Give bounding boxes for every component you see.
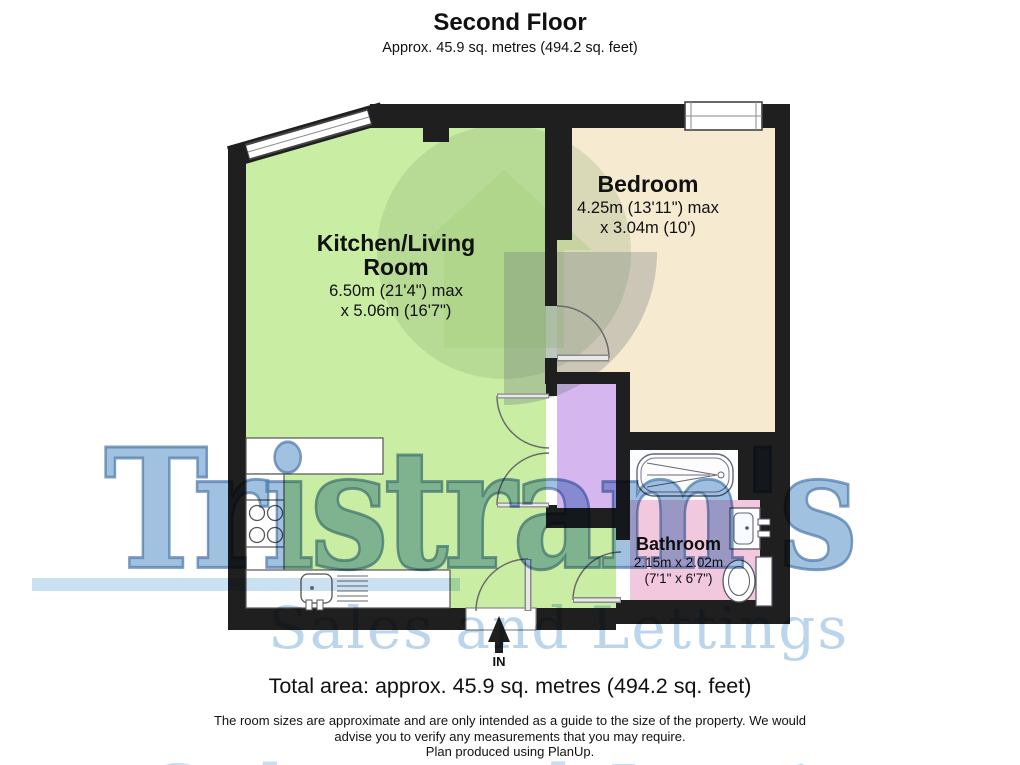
bedroom-dim1: 4.25m (13'11") max	[528, 199, 768, 218]
disclaimer-line1: The room sizes are approximate and are o…	[0, 713, 1020, 729]
wall-pillar	[423, 128, 449, 142]
wall-closet-top	[546, 372, 630, 384]
closet-floor	[557, 384, 616, 508]
bedroom-label: Bedroom 4.25m (13'11") max x 3.04m (10')	[528, 172, 768, 238]
disclaimer-line3: Plan produced using PlanUp.	[0, 744, 1020, 760]
bathroom-dim1: 2.15m x 2.02m	[596, 555, 761, 571]
kitchen-dim1: 6.50m (21'4") max	[251, 282, 541, 301]
bedroom-name: Bedroom	[528, 172, 768, 196]
kitchen-name-line2: Room	[251, 255, 541, 279]
wall-bedroom-south	[616, 432, 775, 450]
hob-icon	[246, 500, 284, 547]
floor-plan-canvas	[0, 0, 1020, 765]
bedroom-window	[685, 102, 762, 130]
wall-divider-mid	[545, 237, 557, 306]
total-area-text: Total area: approx. 45.9 sq. metres (494…	[0, 674, 1020, 699]
footer: Total area: approx. 45.9 sq. metres (494…	[0, 674, 1020, 760]
wall-bottom-mid	[536, 608, 616, 630]
bathroom-name: Bathroom	[596, 535, 761, 554]
entrance-in-label: IN	[481, 654, 517, 669]
wall-right	[775, 104, 790, 624]
wall-bottom-left	[228, 608, 466, 630]
disclaimer-line2: advise you to verify any measurements th…	[0, 729, 1020, 745]
bathroom-label: Bathroom 2.15m x 2.02m (7'1" x 6'7")	[596, 535, 761, 587]
bathtub-icon	[637, 454, 733, 496]
wall-bathroom-west	[616, 384, 630, 540]
worktop-top	[246, 438, 383, 474]
bedroom-dim2: x 3.04m (10')	[528, 219, 768, 238]
kitchen-label: Kitchen/Living Room 6.50m (21'4") max x …	[251, 231, 541, 321]
wall-left	[228, 148, 246, 630]
kitchen-name-line1: Kitchen/Living	[251, 231, 541, 255]
kitchen-dim2: x 5.06m (16'7")	[251, 302, 541, 321]
bathroom-dim2: (7'1" x 6'7")	[596, 571, 761, 587]
floorplan-page: Second Floor Approx. 45.9 sq. metres (49…	[0, 0, 1020, 765]
wall-void-by-tub	[738, 450, 775, 500]
